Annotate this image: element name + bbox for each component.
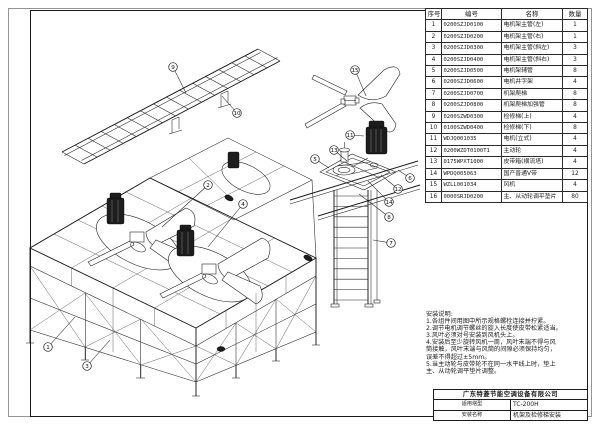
parts-cell: 1 — [426, 20, 442, 31]
parts-cell: 7 — [426, 88, 442, 99]
parts-cell: 4 — [563, 77, 588, 88]
callout-number: 3 — [85, 364, 89, 370]
callout-number: 6 — [408, 176, 412, 182]
parts-cell: 0175WPXT1000 — [442, 157, 502, 168]
company-name: 广东特菱节能空调设备有限公司 — [434, 390, 588, 400]
parts-cell: 机架爬梯加强管 — [502, 100, 563, 111]
parts-table-header-row: 序号 编号 名称 数量 — [426, 9, 588, 20]
col-header-qty: 数量 — [563, 9, 588, 20]
parts-row: 130175WPXT1000皮带箱(横流塔)4 — [426, 157, 588, 168]
parts-cell: 0200WZDT0100T1 — [442, 145, 502, 156]
parts-row: 70200SZJD0700机架爬梯8 — [426, 88, 588, 99]
parts-cell: 0200SZWD0300 — [442, 111, 502, 122]
parts-cell: 机架爬梯 — [502, 88, 563, 99]
parts-row: 100100SZWD0400检修梯(下)8 — [426, 123, 588, 134]
callout-number: 13 — [330, 148, 338, 154]
col-header-index: 序号 — [426, 9, 442, 20]
callout-number: 9 — [171, 65, 175, 71]
parts-cell: 4 — [563, 111, 588, 122]
title-block: 广东特菱节能空调设备有限公司 适用塔型 TC-200H 安装名称 机架及检修梯安… — [433, 389, 588, 421]
install-name-label: 安装名称 — [434, 410, 511, 421]
parts-cell: 0200SZJD0500 — [442, 66, 502, 77]
parts-cell: 5 — [426, 66, 442, 77]
parts-cell: 电机架主管(左) — [502, 20, 563, 31]
parts-cell: 电机架辅管 — [502, 66, 563, 77]
parts-cell: 12 — [563, 168, 588, 179]
parts-cell: 8 — [426, 100, 442, 111]
parts-cell: 3 — [563, 43, 588, 54]
parts-cell: 0200SZJD0600 — [442, 77, 502, 88]
install-notes-line: 误差不得超过±5mm。 — [426, 354, 582, 361]
callout-number: 8 — [387, 215, 391, 221]
parts-row: 11WDJQ001035电机(立式)4 — [426, 134, 588, 145]
frame-ladder — [331, 190, 380, 307]
parts-cell: 80 — [563, 191, 588, 202]
tower-model-value: TC-200H — [511, 400, 588, 411]
tower-structure-view — [26, 138, 320, 396]
install-notes-line: 5.当主动轮与皮带轮不在同一水平线上时，垫上 — [426, 361, 582, 368]
parts-cell: 电机(立式) — [502, 134, 563, 145]
parts-cell: 电机井字架 — [502, 77, 563, 88]
parts-row: 20200SZJD0200电机架主管(右)1 — [426, 31, 588, 42]
parts-cell: 15 — [426, 180, 442, 191]
parts-cell: 4 — [426, 54, 442, 65]
parts-cell: 4 — [563, 180, 588, 191]
callout-balloon: 12 — [381, 175, 402, 193]
install-name-value: 机架及检修梯安装 — [511, 410, 588, 421]
parts-cell: 检修梯(上) — [502, 111, 563, 122]
parts-cell: 4 — [563, 145, 588, 156]
ladder-bracket — [169, 117, 182, 134]
parts-cell: 13 — [426, 157, 442, 168]
tower-model-label: 适用塔型 — [434, 400, 511, 411]
parts-cell: 1 — [563, 31, 588, 42]
parts-row: 80200SZJD0800机架爬梯加强管8 — [426, 100, 588, 111]
parts-cell: 0100SZWD0400 — [442, 123, 502, 134]
callout-number: 11 — [346, 133, 354, 139]
callout-balloon: 7 — [373, 239, 395, 248]
callout-balloon: 14 — [368, 181, 393, 206]
parts-row: 160000SRJD0200主、从动轮调平垫片80 — [426, 191, 588, 202]
parts-cell: 8 — [563, 100, 588, 111]
install-notes: 安装说明: 1.各组件间用图中所示规格螺栓连接并拧紧。2.调节电机调节螺丝的旋入… — [426, 311, 582, 375]
parts-cell: 国产普通V带 — [502, 168, 563, 179]
parts-cell: 2 — [426, 31, 442, 42]
parts-cell: 风机 — [502, 180, 563, 191]
parts-cell: 9 — [426, 111, 442, 122]
parts-cell: 4 — [563, 157, 588, 168]
callout-number: 7 — [389, 241, 393, 247]
parts-cell: 11 — [426, 134, 442, 145]
parts-cell: 0200SZJD0700 — [442, 88, 502, 99]
drawing-sheet: 910151113561214872413 序号 编号 名称 数量 10200S… — [0, 0, 600, 424]
parts-cell: 主、从动轮调平垫片 — [502, 191, 563, 202]
parts-row: 30200SZJD0300电机架主管(斜左)3 — [426, 43, 588, 54]
parts-cell: 0200SZJD0100 — [442, 20, 502, 31]
parts-cell: 主动轮 — [502, 145, 563, 156]
parts-cell: 皮带箱(横流塔) — [502, 157, 563, 168]
parts-cell: 检修梯(下) — [502, 123, 563, 134]
parts-cell: 8 — [563, 123, 588, 134]
callout-number: 5 — [313, 157, 317, 163]
callout-balloon: 5 — [311, 155, 329, 168]
callout-number: 4 — [241, 202, 245, 208]
parts-cell: 0200SZJD0200 — [442, 31, 502, 42]
parts-cell: 3 — [426, 43, 442, 54]
callout-number: 10 — [233, 111, 241, 117]
parts-row: 90200SZWD0300检修梯(上)4 — [426, 111, 588, 122]
parts-cell: 12 — [426, 145, 442, 156]
col-header-name: 名称 — [502, 9, 563, 20]
parts-cell: WZLL001034 — [442, 180, 502, 191]
parts-cell: 0000SRJD0200 — [442, 191, 502, 202]
parts-cell: 3 — [563, 54, 588, 65]
motor — [366, 121, 387, 154]
callout-number: 15 — [351, 68, 359, 74]
parts-cell: 0200SZJD0800 — [442, 100, 502, 111]
parts-cell: 0200SZJD0400 — [442, 54, 502, 65]
fan-blades — [305, 67, 400, 132]
callout-balloon: 10 — [222, 96, 241, 117]
parts-cell: 电机架主管(右) — [502, 31, 563, 42]
parts-cell: 6 — [426, 77, 442, 88]
parts-cell: WPDQ005063 — [442, 168, 502, 179]
parts-row: 60200SZJD0600电机井字架4 — [426, 77, 588, 88]
callout-number: 14 — [385, 200, 393, 206]
parts-row: 120200WZDT0100T1主动轮4 — [426, 145, 588, 156]
parts-table: 序号 编号 名称 数量 10200SZJD0100电机架主管(左)120200S… — [425, 8, 588, 203]
parts-row: 14WPDQ005063国产普通V带12 — [426, 168, 588, 179]
callout-balloon: 3 — [83, 340, 110, 370]
callout-number: 12 — [394, 187, 401, 193]
parts-cell: 0200SZJD0300 — [442, 43, 502, 54]
parts-row: 50200SZJD0500电机架辅管8 — [426, 66, 588, 77]
parts-cell: 10 — [426, 123, 442, 134]
parts-cell: 4 — [563, 134, 588, 145]
parts-cell: WDJQ001035 — [442, 134, 502, 145]
callout-balloon: 6 — [398, 170, 414, 182]
callout-number: 1 — [46, 345, 50, 351]
callout-balloon: 11 — [346, 131, 364, 140]
parts-row: 40200SZJD0400电机架主管(斜右)3 — [426, 54, 588, 65]
callout-balloon: 4 — [208, 200, 247, 247]
parts-cell: 电机架主管(斜右) — [502, 54, 563, 65]
parts-cell: 8 — [563, 66, 588, 77]
parts-cell: 16 — [426, 191, 442, 202]
parts-row: 15WZLL001034风机4 — [426, 180, 588, 191]
col-header-code: 编号 — [442, 9, 502, 20]
install-notes-line: 筒接触，风叶末端与风筒的间隙必须保持均匀， — [426, 346, 582, 353]
ladder-bracket — [218, 91, 231, 108]
parts-cell: 电机架主管(斜左) — [502, 43, 563, 54]
parts-cell: 1 — [563, 20, 588, 31]
parts-cell: 14 — [426, 168, 442, 179]
callout-number: 2 — [206, 183, 210, 189]
parts-cell: 8 — [563, 88, 588, 99]
callout-balloon: 1 — [44, 317, 75, 351]
install-notes-line: 主、从动轮调平垫片调整。 — [426, 368, 582, 375]
parts-row: 10200SZJD0100电机架主管(左)1 — [426, 20, 588, 31]
